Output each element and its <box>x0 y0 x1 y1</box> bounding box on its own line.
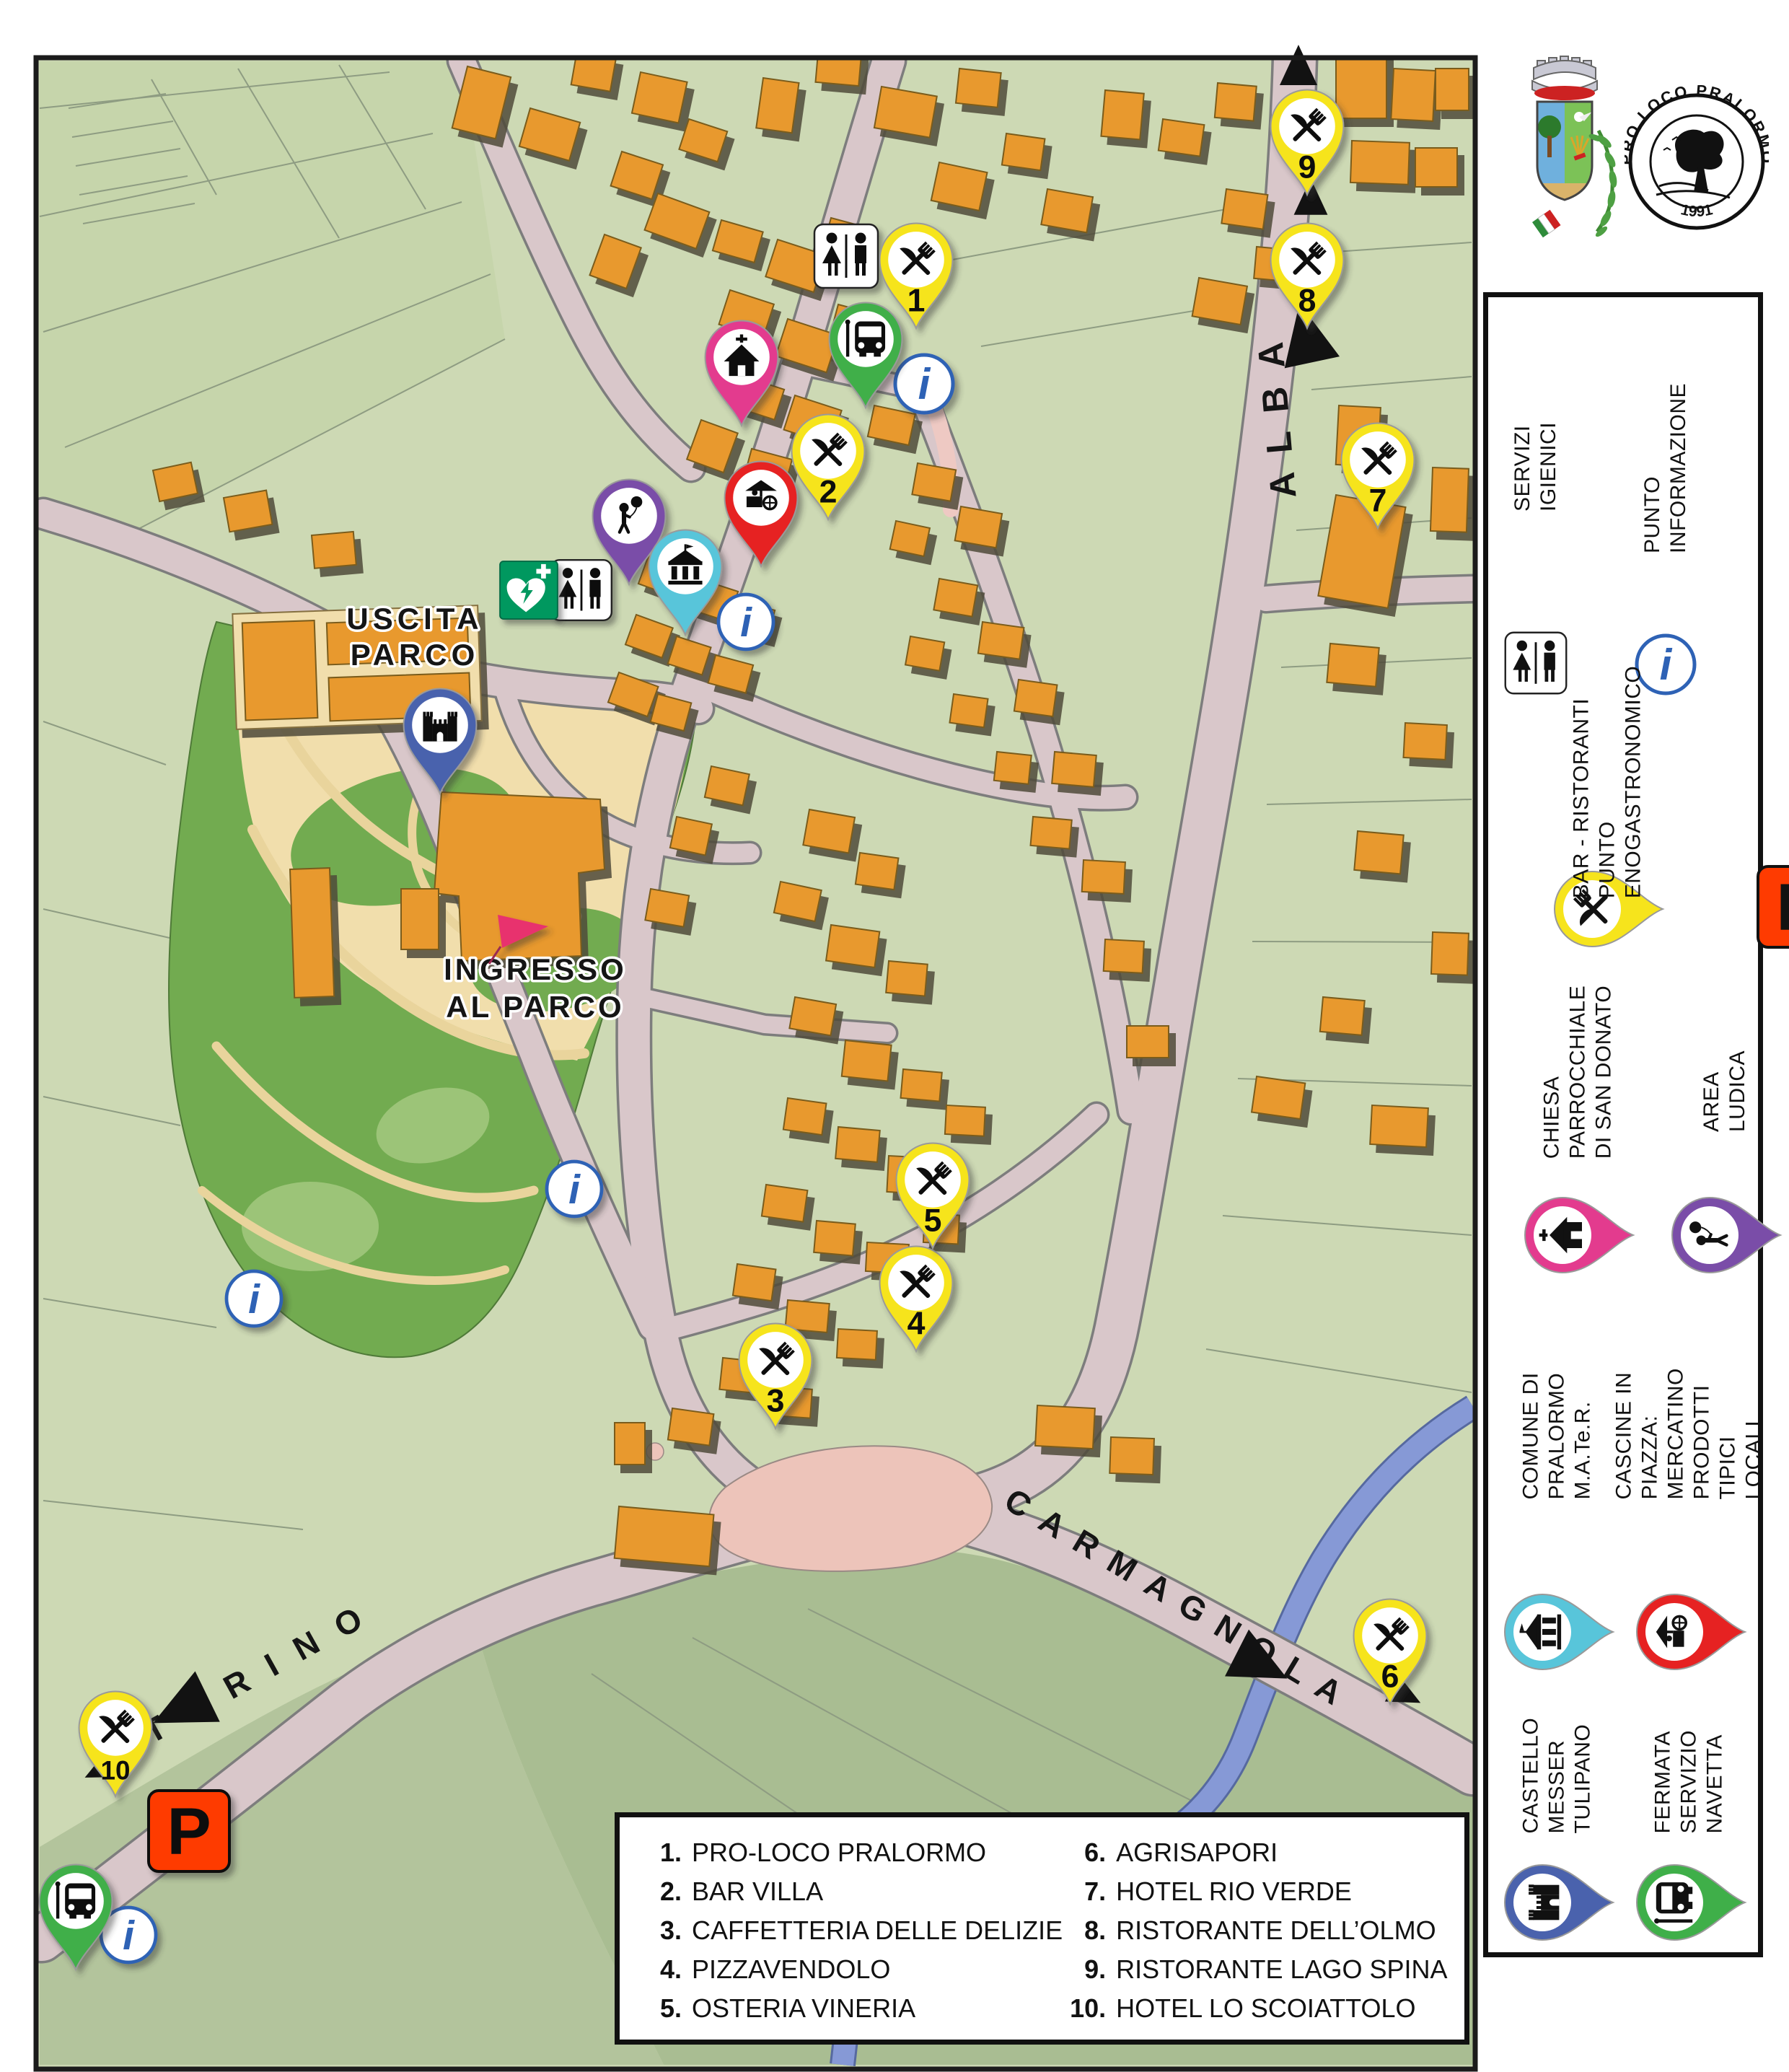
parking-icon[interactable] <box>149 1791 229 1871</box>
poi-list-column-2: 6.AGRISAPORI 7.HOTEL RIO VERDE 8.RISTORA… <box>1063 1833 1457 2032</box>
legend-label: AREA LUDICA <box>1699 1012 1751 1132</box>
pralormo-tourist-map: { "map": { "labels": [ {"text":"USCITA\n… <box>0 0 1789 2072</box>
legend-item-punto-informazione: PUNTO INFORMAZIONE <box>1581 304 1751 698</box>
legend-sidebar: SERVIZI IGIENICI PUNTO INFORMAZIONE DEFI… <box>1483 292 1763 1957</box>
svg-text:8: 8 <box>1298 284 1317 319</box>
legend-item-fermata: FERMATA SERVIZIO NAVETTA <box>1623 1674 1755 1945</box>
legend-item-castello: CASTELLO MESSER TULIPANO <box>1491 1674 1623 1945</box>
legend-item-defibrillatore: DEFIBRILLATORE <box>1751 304 1789 698</box>
info-point-icon[interactable] <box>895 355 953 413</box>
legend-item-bar-ristoranti: BAR - RISTORANTI PUNTO ENOGASTRONOMICO <box>1491 698 1724 952</box>
legend-label: FERMATA SERVIZIO NAVETTA <box>1650 1701 1728 1833</box>
svg-text:9: 9 <box>1298 150 1317 185</box>
svg-text:6: 6 <box>1381 1659 1399 1695</box>
legend-item-chiesa: CHIESA PARROCCHIALE DI SAN DONATO <box>1491 952 1665 1278</box>
legend-item-parcheggio: PARCHEGGIO <box>1724 698 1789 952</box>
legend-label: PUNTO INFORMAZIONE <box>1640 383 1692 553</box>
poi-list-item: 5.OSTERIA VINERIA <box>638 1989 1063 2028</box>
legend-label: CHIESA PARROCCHIALE DI SAN DONATO <box>1539 985 1617 1159</box>
shuttle-pin-icon <box>1630 1860 1749 1945</box>
poi-list-item: 2.BAR VILLA <box>638 1872 1063 1911</box>
pro-loco-seal-logo: PRO LOCO PRALORMO 1991 <box>1625 85 1769 238</box>
svg-text:1991: 1991 <box>1679 201 1715 220</box>
toilets-icon[interactable] <box>551 560 612 620</box>
svg-text:7: 7 <box>1369 483 1387 519</box>
svg-text:5: 5 <box>924 1203 942 1239</box>
toilets-icon[interactable] <box>814 224 878 288</box>
info-point-icon[interactable] <box>227 1271 281 1326</box>
poi-list-column-1: 1.PRO-LOCO PRALORMO 2.BAR VILLA 3.CAFFET… <box>638 1833 1063 2032</box>
poi-list-item: 4.PIZZAVENDOLO <box>638 1950 1063 1989</box>
poi-list-item: 7.HOTEL RIO VERDE <box>1063 1872 1457 1911</box>
svg-text:3: 3 <box>767 1384 785 1419</box>
poi-list-box: 1.PRO-LOCO PRALORMO 2.BAR VILLA 3.CAFFET… <box>615 1812 1469 2045</box>
legend-item-cascine: CASCINE IN PIAZZA: MERCATINO PRODOTTI TI… <box>1623 1278 1755 1674</box>
church-pin-icon <box>1518 1193 1638 1278</box>
legend-label: SERVIZI IGIENICI <box>1510 421 1562 511</box>
legend-label: PARCHEGGIO <box>1785 706 1789 854</box>
legend-label: BAR - RISTORANTI PUNTO ENOGASTRONOMICO <box>1568 666 1646 899</box>
svg-text:1: 1 <box>907 284 926 319</box>
legend-label: CASTELLO MESSER TULIPANO <box>1518 1701 1596 1833</box>
playground-pin-icon <box>1665 1193 1785 1278</box>
legend-label: CASCINE IN PIAZZA: MERCATINO PRODOTTI TI… <box>1612 1368 1767 1500</box>
poi-list-item: 6.AGRISAPORI <box>1063 1833 1457 1872</box>
parking-icon <box>1754 862 1789 952</box>
poi-list-item: 8.RISTORANTE DELL’OLMO <box>1063 1911 1457 1950</box>
info-point-icon[interactable] <box>547 1162 602 1216</box>
market-pin-icon <box>1630 1589 1749 1674</box>
defibrillator-icon[interactable] <box>500 561 558 619</box>
svg-text:2: 2 <box>819 475 838 510</box>
toilets-icon <box>1501 628 1570 698</box>
svg-text:4: 4 <box>907 1307 926 1342</box>
poi-list-item: 3.CAFFETTERIA DELLE DELIZIE <box>638 1911 1063 1950</box>
townhall-pin-icon <box>1498 1589 1617 1674</box>
legend-item-comune: COMUNE DI PRALORMO M.A.Te.R. <box>1491 1278 1623 1674</box>
legend-item-servizi-igienici: SERVIZI IGIENICI <box>1491 304 1581 698</box>
castle-pin-icon <box>1498 1860 1617 1945</box>
poi-list-item: 10.HOTEL LO SCOIATTOLO <box>1063 1989 1457 2028</box>
poi-list-item: 9.RISTORANTE LAGO SPINA <box>1063 1950 1457 1989</box>
poi-list-item: 1.PRO-LOCO PRALORMO <box>638 1833 1063 1872</box>
legend-label: COMUNE DI PRALORMO M.A.Te.R. <box>1518 1368 1596 1500</box>
comune-coat-of-arms-logo <box>1511 48 1620 264</box>
info-point-icon[interactable] <box>718 594 773 649</box>
svg-text:10: 10 <box>101 1756 131 1786</box>
legend-item-area-ludica: AREA LUDICA <box>1665 952 1785 1278</box>
